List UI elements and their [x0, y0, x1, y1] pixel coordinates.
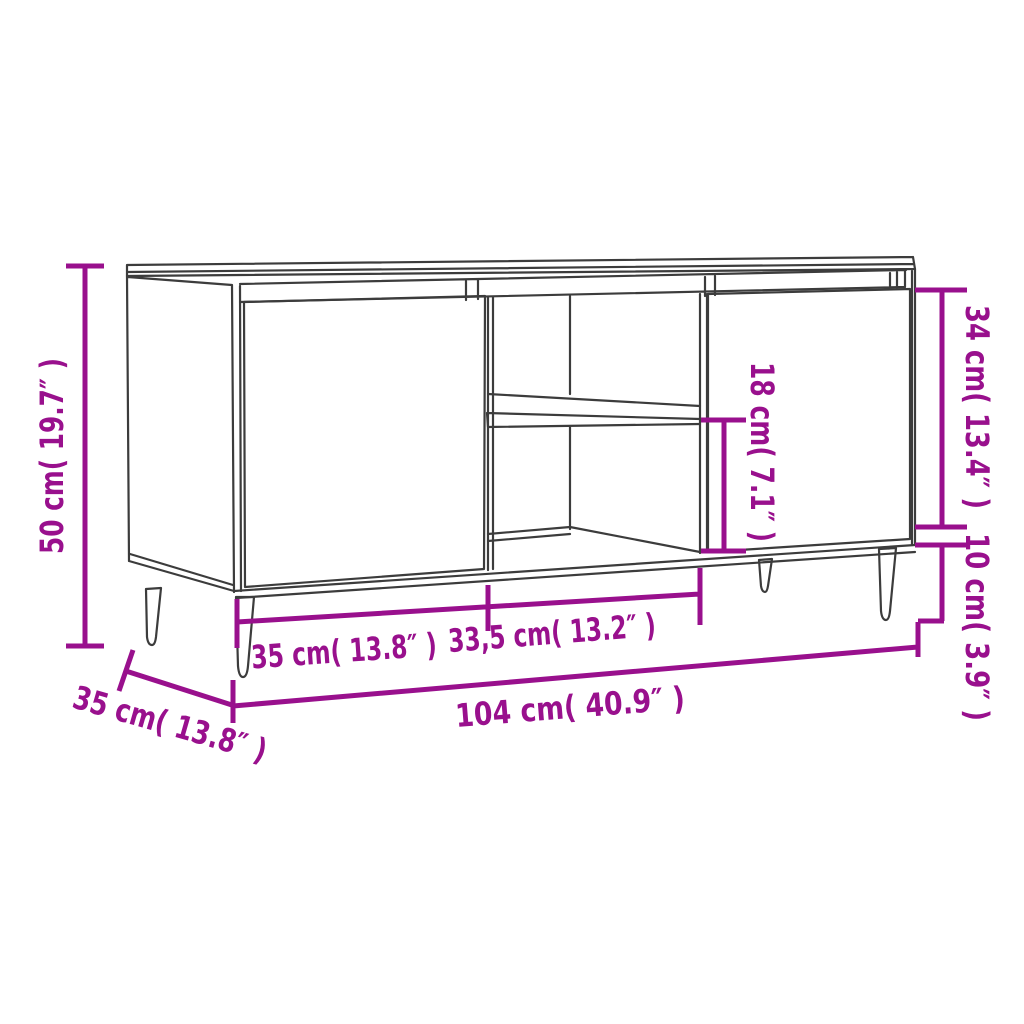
dimension-height: 50 cm( 19.7″ ) [33, 266, 104, 646]
middle-section-width-label: 33,5 cm( 13.2″ ) [447, 606, 657, 660]
leg-back-left [146, 588, 161, 645]
dimension-section-widths: 35 cm( 13.8″ ) 33,5 cm( 13.2″ ) [237, 568, 700, 676]
compartment-floor [488, 527, 700, 552]
middle-shelf [487, 394, 700, 427]
height-dim-line [66, 266, 104, 646]
depth-dim-label: 35 cm( 13.8″ ) [69, 678, 272, 770]
dimension-shelf-opening: 18 cm( 7.1″ ) [701, 362, 781, 551]
leg-back-right [759, 559, 772, 592]
total-width-label: 104 cm( 40.9″ ) [454, 679, 686, 735]
furniture-drawing [127, 257, 915, 677]
divider-left [488, 297, 493, 570]
dimension-diagram: 50 cm( 19.7″ ) 35 cm( 13.8″ ) 35 cm( 13.… [0, 0, 1024, 1024]
height-dim-label: 50 cm( 19.7″ ) [33, 358, 71, 554]
dimension-door-height: 34 cm( 13.4″ ) [915, 290, 996, 527]
shelf-opening-label: 18 cm( 7.1″ ) [743, 362, 781, 542]
dimension-diagram-canvas: 50 cm( 19.7″ ) 35 cm( 13.8″ ) 35 cm( 13.… [0, 0, 1024, 1024]
divider-right [700, 294, 707, 553]
leg-height-label: 10 cm( 3.9″ ) [958, 533, 996, 721]
door-height-label: 34 cm( 13.4″ ) [958, 305, 996, 509]
dimension-annotations: 50 cm( 19.7″ ) 35 cm( 13.8″ ) 35 cm( 13.… [33, 266, 996, 770]
left-door [244, 296, 485, 587]
left-section-width-label: 35 cm( 13.8″ ) [250, 626, 438, 677]
right-edge [912, 269, 915, 545]
dimension-leg-height: 10 cm( 3.9″ ) [915, 533, 996, 721]
bottom-edges [234, 545, 915, 598]
left-side-panel [127, 276, 241, 592]
leg-front-right [879, 548, 896, 620]
